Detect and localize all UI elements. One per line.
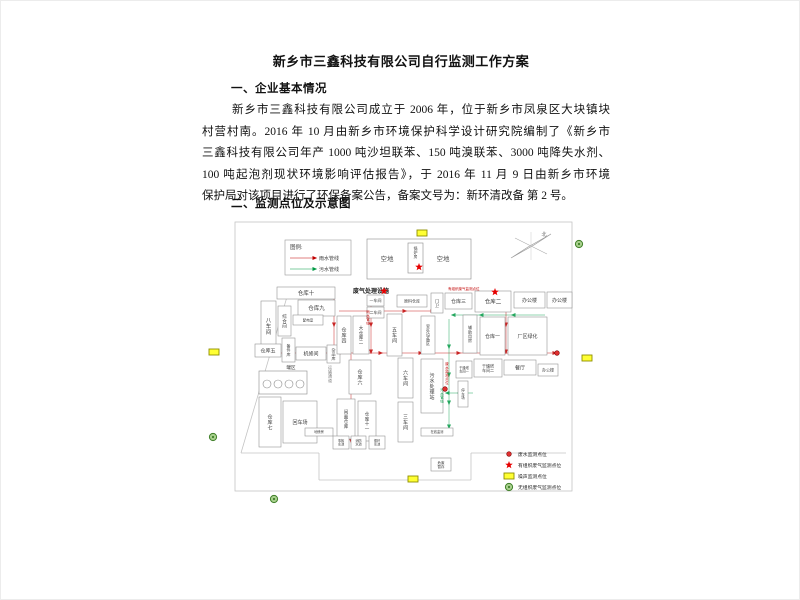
building: 餐厅 [504,360,536,375]
vchar: 六 [357,379,362,386]
building-label: 原料仓库 [404,298,420,304]
vchar: 道 [328,377,332,383]
building: 仓库三 [445,293,472,309]
vchar: 房 [414,254,418,259]
building-label: 六车间 [403,370,408,388]
noise-monitoring-point-icon [408,476,418,482]
building: 原料仓库 [397,295,427,307]
vchar: 间 [403,380,408,387]
building: 备件库 [282,338,295,362]
wline: 车间一 [459,369,469,374]
vchar: 房 [468,337,472,343]
building: 八车间 [261,301,276,351]
vchar: 五 [392,328,397,334]
building-label: 在线监测 [431,429,444,434]
vchar: 处 [429,383,434,390]
vchar: 车 [266,322,272,330]
building: 在线监测 [421,428,453,436]
building-label: 回车场 [292,419,307,426]
vchar: 间 [282,323,287,330]
vchar: 水 [429,378,434,385]
building: 办公楼 [538,364,558,376]
tank-area-label: 罐区 [287,364,296,371]
fugitive-gas-monitoring-point-dot [508,486,510,488]
wastewater-monitoring-point-icon [555,351,560,356]
building-label: 危废暂存 [438,460,446,469]
building: 综合间 [278,306,291,336]
wline: 水池 [374,442,381,447]
building-label: 辅助用房 [468,324,472,343]
pipeline-text-label: 废水监测点位 [445,361,449,385]
building: 停车场 [458,381,468,407]
building-label: 闲置仓库 [344,409,349,431]
building-label: 门卫 [435,297,439,307]
building: 六车间 [398,358,413,398]
building-label: 仓库五 [260,347,275,354]
building: 闲置仓库 [337,399,355,439]
vchar: 库 [287,351,291,357]
building-label: 停车场 [461,388,465,401]
building: 地磅房 [305,428,333,436]
building-label: 污水处理站 [429,372,434,401]
vchar: 场 [461,395,465,400]
building: 仓库四 [337,316,351,354]
building-label: 办公楼 [542,367,554,373]
vchar: 一 [365,426,370,431]
building: 五车间 [387,314,402,356]
building-label: 地磅房 [314,429,324,434]
building: 门卫 [431,293,443,313]
building-label: 五车间 [392,328,397,345]
vchar: 四 [341,338,346,344]
pipeline-text-label: 雨水管线 [366,309,370,325]
fugitive-gas-monitoring-point-dot [578,243,580,245]
north-label: 北 [541,231,546,238]
open-area-label: 空地 [437,254,451,263]
building-label: 三车间 [403,415,408,432]
vchar: 理 [429,389,434,395]
site-plan-diagram: 锅炉房空地空地罐区仓库十仓库九八车间综合间配电室仓库五备件库机修间杂品库仓库四大… [1,1,800,600]
building-label: 仓库四 [341,327,346,345]
building: 仓库一 [480,317,505,355]
building-label: 仓库三 [451,298,466,305]
boiler-room-label: 锅炉房 [414,246,418,259]
building-label: 循环水池 [374,438,381,447]
building-label: 办公楼 [552,297,567,304]
vchar: 车 [403,375,408,382]
building: 一车间 [367,295,384,306]
building: 仓库九 [298,300,335,316]
building: 仓库十一 [358,401,376,441]
vchar: 七 [267,424,272,431]
vchar: 库 [332,355,336,361]
marker-legend-label: 废水监测点位 [518,451,547,458]
building-label: 仓库一 [485,333,500,340]
marker-legend-label: 有组织废气监测点位 [518,462,561,469]
vchar: 间 [392,337,397,344]
vchar: 线 [440,398,444,403]
building: 仓库十 [277,287,335,299]
tank-area [259,371,307,394]
building: 仓库七 [259,397,281,447]
building-label: 室外设备区 [426,323,430,346]
building: 危废暂存 [431,458,451,471]
building-label: 餐厅 [515,364,525,371]
wline: 水池 [338,442,345,447]
building-label: 厂区绿化 [517,333,537,340]
building-label: 仓库七 [267,414,272,432]
building: 辅助用房 [463,315,477,353]
building-label: 配电室 [303,317,314,322]
vchar: 库 [267,419,272,426]
building-label: 仓库二 [485,298,502,306]
building: 消防水池 [351,436,366,449]
vchar: 车 [392,332,397,339]
building-label: 事故水池 [338,438,345,447]
vchar: 三 [403,415,408,421]
noise-monitoring-point-icon [504,473,514,479]
building: 污水处理站 [421,359,443,413]
marker-legend-label: 噪声监测点位 [518,473,547,480]
open-area-label: 空地 [381,254,395,263]
building: 配电室 [293,315,323,325]
wline: 暂存 [438,464,446,469]
vchar: 库 [344,423,349,430]
building: 机修间 [296,347,326,360]
fugitive-gas-monitoring-point-dot [212,436,214,438]
vchar: 区 [426,341,430,346]
vchar: 位 [445,380,449,385]
document-page: 新乡市三鑫科技有限公司自行监测工作方案 一、企业基本情况 新乡市三鑫科技有限公司… [0,0,800,600]
vchar: 站 [429,394,434,401]
vchar: 仓 [267,414,272,421]
vchar: 线 [366,320,370,325]
building: 仓库五 [255,344,281,357]
vchar: 二 [359,340,364,345]
vchar: 间 [266,328,272,336]
vchar: 污 [429,372,434,379]
wastewater-monitoring-point-icon [443,387,448,392]
marker-legend-label: 无组织废气监测点位 [518,484,561,491]
vchar: 卫 [435,303,439,308]
building: 回车场 [283,401,317,443]
building-label: 大仓库二 [359,325,364,346]
pipeline-legend-label: 雨水管线 [319,255,339,262]
vchar: 仓 [341,327,346,334]
noise-monitoring-point-icon [582,355,592,361]
building: 干燥塔车间二 [474,359,502,377]
vchar: 库 [341,332,346,339]
building-label: 干燥塔车间二 [482,362,494,373]
pipeline-legend-label: 污水管线 [319,266,339,273]
building-label: 仓库九 [308,304,325,312]
wastewater-monitoring-point-icon [507,452,512,457]
vchar: 六 [403,370,408,377]
building-label: 干燥塔车间一 [459,365,469,374]
building: 办公楼 [514,292,545,308]
vchar: 仓 [357,369,362,376]
building-label: 一车间 [370,297,382,303]
building: 三车间 [398,402,413,442]
fugitive-gas-monitoring-point-dot [273,498,275,500]
pipeline-legend-title: 图例: [290,243,303,251]
building-label: 二车间 [370,309,382,315]
building-label: 仓库十 [298,289,315,297]
building: 循环水池 [369,436,385,449]
noise-monitoring-point-icon [209,349,219,355]
building-label: 八车间 [266,318,272,336]
pipeline-text-label: 有组织废气监测点位 [448,286,480,291]
building: 厂区绿化 [508,317,547,355]
building: 室外设备区 [421,316,435,354]
building-label: 备件库 [287,342,291,357]
organized-gas-monitoring-point-icon [505,461,513,468]
building-label: 综合间 [282,313,287,330]
building: 仓库六 [349,360,371,394]
noise-monitoring-point-icon [417,230,427,236]
building-label: 机修间 [303,350,318,357]
building-label: 办公楼 [522,297,537,304]
vchar: 库 [357,374,362,381]
vchar: 间 [403,424,408,431]
road-label: 运输通道 [328,364,332,383]
vchar: 车 [403,419,408,426]
building-label: 杂品库 [332,346,336,361]
wline: 水池 [355,442,362,447]
building-label: 仓库十一 [365,411,370,432]
wline: 车间二 [482,367,494,373]
building: 办公楼 [547,292,572,308]
building-label: 仓库六 [357,369,362,387]
building: 干燥塔车间一 [456,361,472,378]
building: 事故水池 [333,436,349,449]
building-label: 消防水池 [355,438,362,447]
